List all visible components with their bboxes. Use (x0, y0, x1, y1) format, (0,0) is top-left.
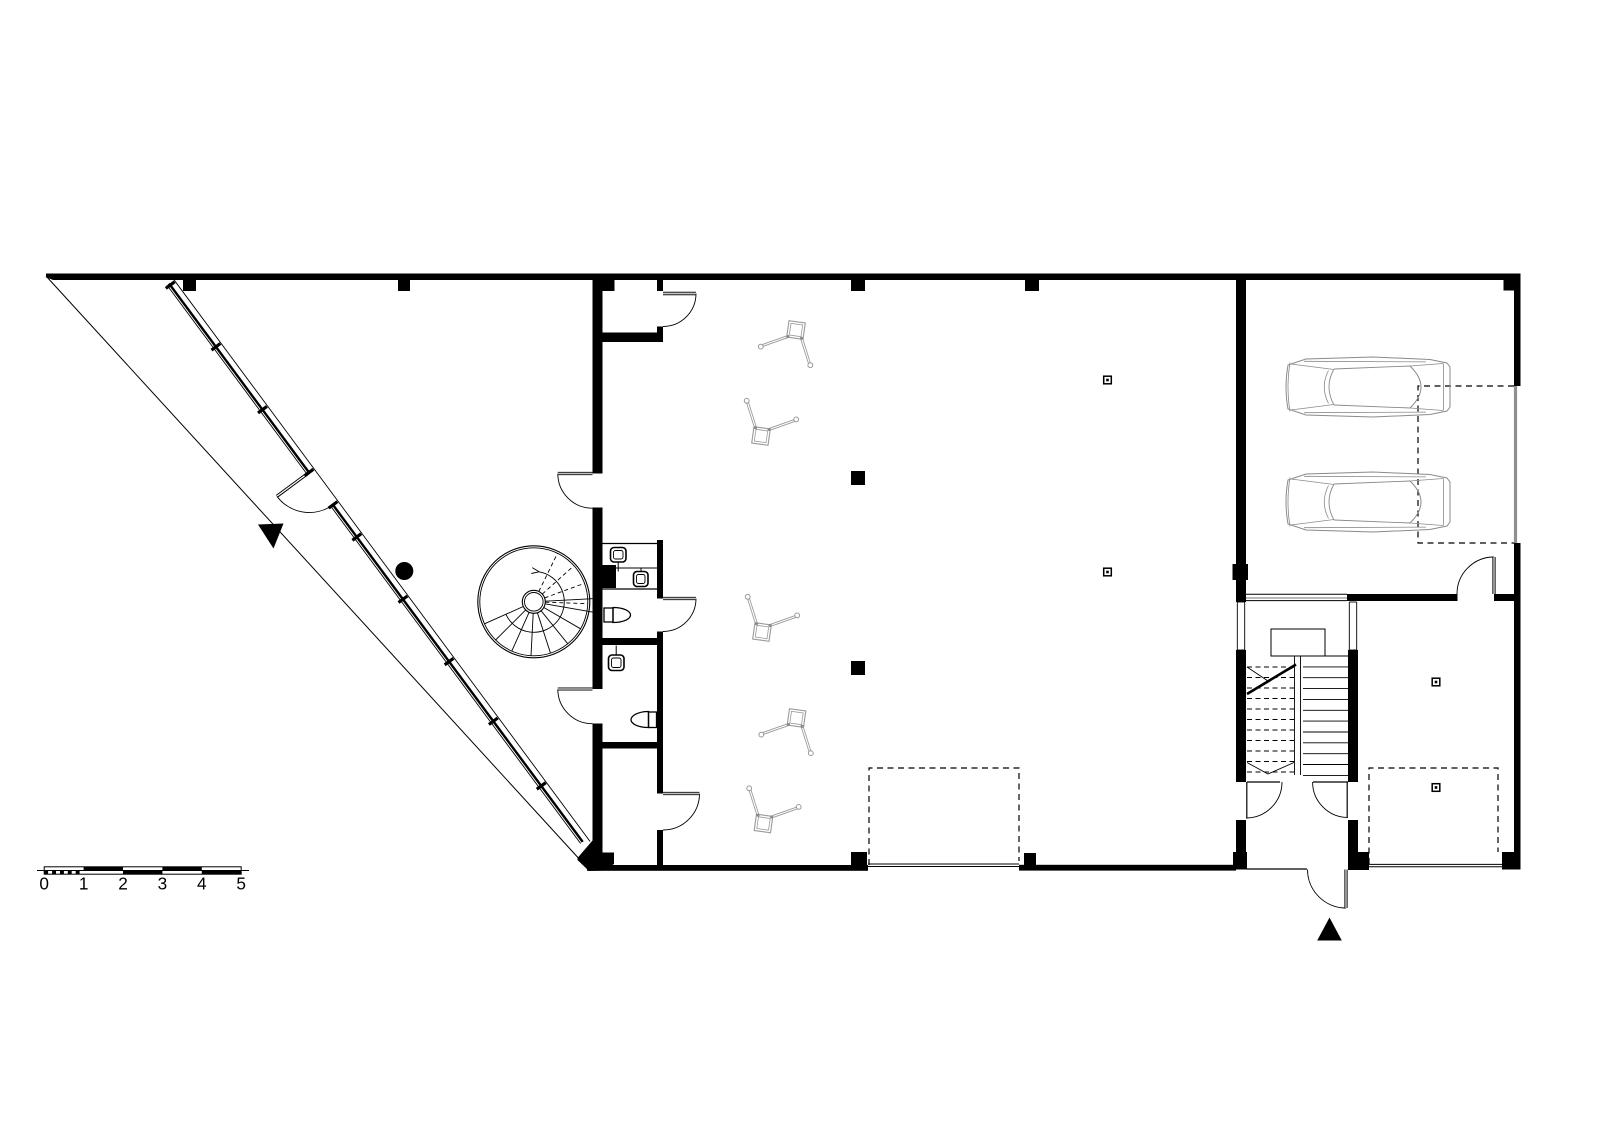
svg-text:2: 2 (118, 874, 128, 894)
svg-text:1: 1 (79, 874, 89, 894)
svg-text:4: 4 (197, 874, 207, 894)
svg-text:0: 0 (39, 874, 49, 894)
svg-text:3: 3 (158, 874, 168, 894)
svg-text:5: 5 (236, 874, 246, 894)
